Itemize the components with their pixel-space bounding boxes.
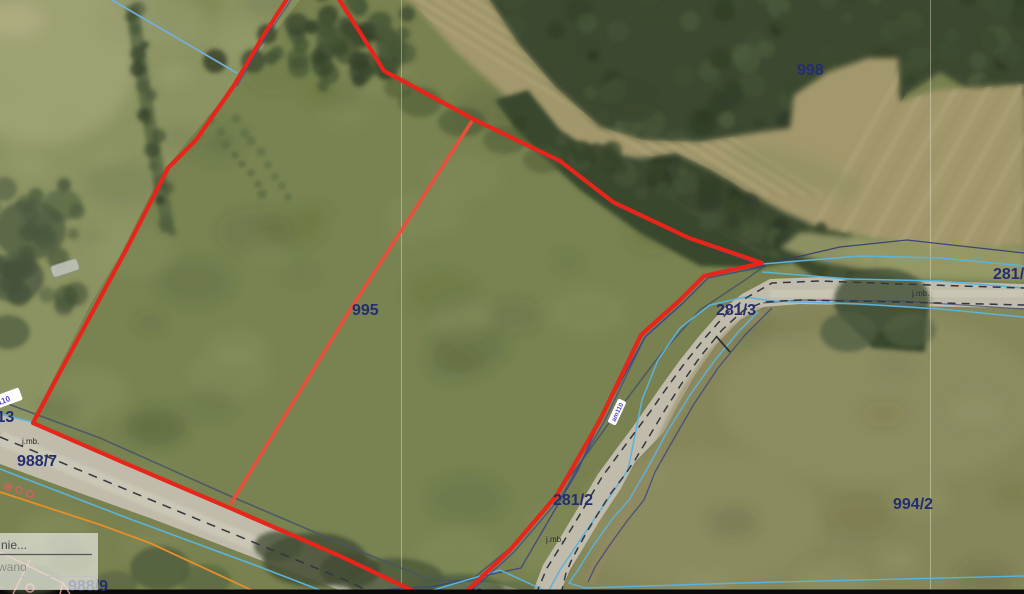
svg-text:281/2: 281/2 (553, 492, 593, 509)
svg-text:281/: 281/ (993, 266, 1024, 283)
svg-text:995: 995 (352, 302, 379, 319)
svg-text:nie...: nie... (1, 538, 27, 552)
svg-text:j.mb.: j.mb. (21, 437, 39, 446)
svg-text:281/3: 281/3 (716, 302, 756, 319)
svg-text:j.mb.: j.mb. (545, 535, 563, 544)
svg-text:998: 998 (797, 62, 824, 79)
svg-text:j.mb.: j.mb. (911, 289, 929, 298)
svg-text:wano: wano (0, 560, 27, 574)
svg-text:/13: /13 (0, 409, 14, 426)
svg-text:988/7: 988/7 (17, 453, 57, 470)
svg-text:994/2: 994/2 (893, 496, 933, 513)
